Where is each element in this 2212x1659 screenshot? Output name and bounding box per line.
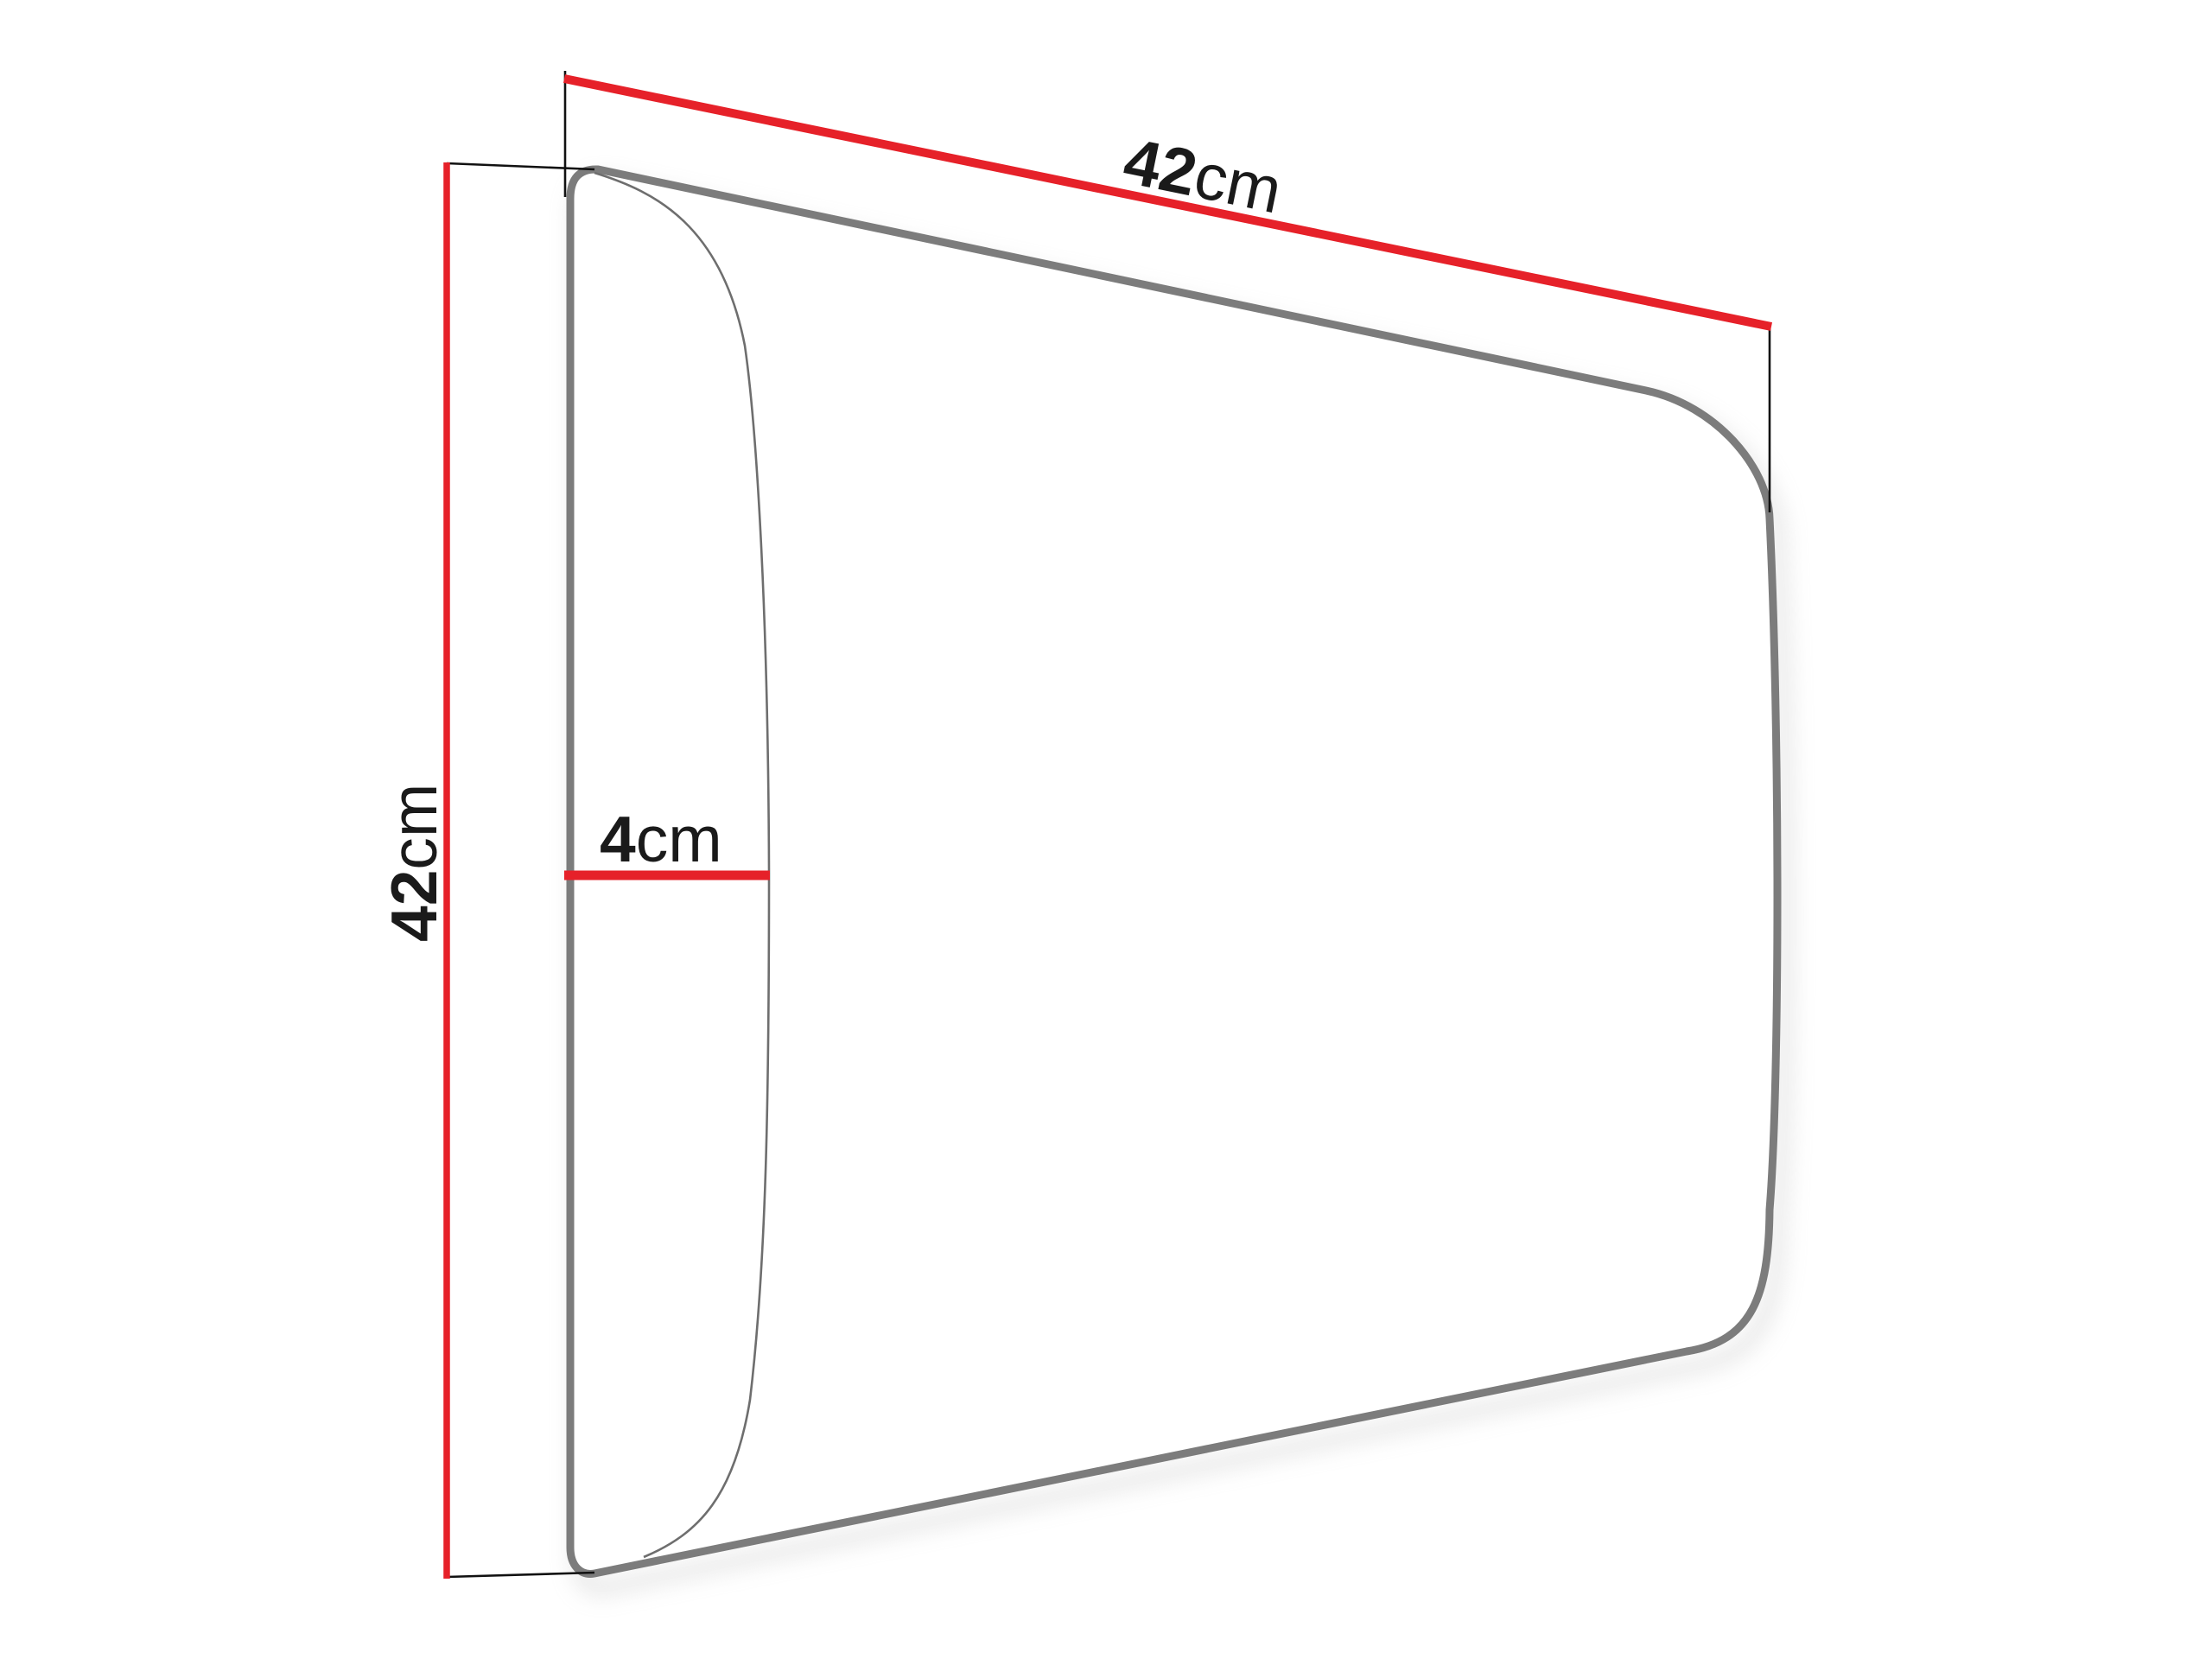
svg-text:42cm: 42cm <box>378 784 450 942</box>
svg-text:4cm: 4cm <box>600 803 722 875</box>
